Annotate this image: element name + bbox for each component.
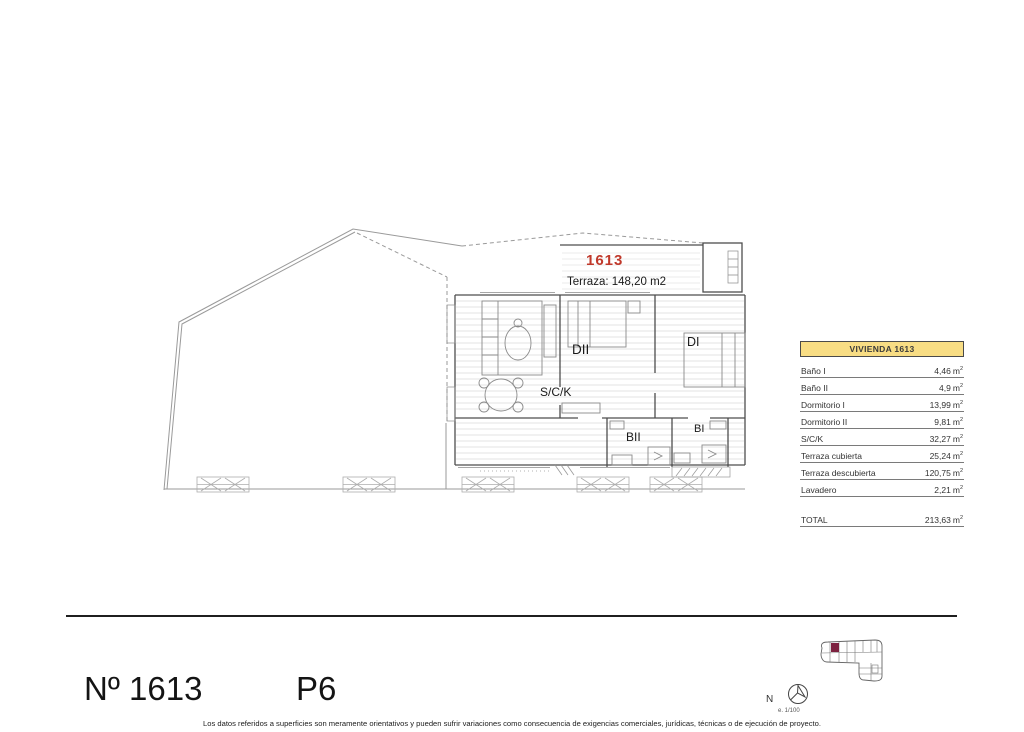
row-label: Baño I bbox=[801, 366, 826, 376]
planter-boxes bbox=[197, 477, 702, 492]
row-label: Terraza descubierta bbox=[801, 468, 876, 478]
floor-plan-drawing bbox=[150, 215, 750, 505]
floor-label: P6 bbox=[296, 670, 336, 708]
table-row: S/C/K 32,27m2 bbox=[800, 429, 964, 446]
table-row: Dormitorio I 13,99m2 bbox=[800, 395, 964, 412]
table-row: Terraza cubierta 25,24m2 bbox=[800, 446, 964, 463]
row-label: Baño II bbox=[801, 383, 828, 393]
room-label-bi: BI bbox=[694, 423, 704, 435]
room-label-bii: BII bbox=[626, 430, 641, 444]
room-label-sck: S/C/K bbox=[540, 385, 571, 399]
north-letter: N bbox=[766, 694, 773, 705]
table-row: Terraza descubierta 120,75m2 bbox=[800, 463, 964, 480]
table-row: Lavadero 2,21m2 bbox=[800, 480, 964, 497]
table-row: Baño II 4,9m2 bbox=[800, 378, 964, 395]
row-label: Lavadero bbox=[801, 485, 836, 495]
scale-note: e. 1/100 bbox=[778, 708, 800, 714]
row-label: S/C/K bbox=[801, 434, 823, 444]
row-value: 9,81m2 bbox=[934, 417, 963, 427]
surface-table-header: VIVIENDA 1613 bbox=[800, 341, 964, 357]
row-value: 13,99m2 bbox=[930, 400, 963, 410]
total-value: 213,63m2 bbox=[925, 515, 963, 525]
table-row: Dormitorio II 9,81m2 bbox=[800, 412, 964, 429]
row-value: 25,24m2 bbox=[930, 451, 963, 461]
locator-unit-highlight bbox=[831, 643, 839, 652]
row-label: Dormitorio I bbox=[801, 400, 845, 410]
terrace-area-label: Terraza: 148,20 m2 bbox=[567, 276, 666, 288]
row-value: 2,21m2 bbox=[934, 485, 963, 495]
room-label-di: DI bbox=[687, 335, 700, 349]
row-value: 120,75m2 bbox=[925, 468, 963, 478]
entrance-marks bbox=[480, 465, 574, 475]
unit-number-label: 1613 bbox=[586, 252, 623, 269]
table-row: Baño I 4,46m2 bbox=[800, 361, 964, 378]
row-value: 4,46m2 bbox=[934, 366, 963, 376]
room-label-dii: DII bbox=[572, 342, 589, 357]
total-label: TOTAL bbox=[801, 515, 828, 525]
row-label: Terraza cubierta bbox=[801, 451, 862, 461]
row-value: 4,9m2 bbox=[939, 383, 963, 393]
disclaimer-text: Los datos referidos a superficies son me… bbox=[132, 719, 892, 728]
footer-divider bbox=[66, 615, 957, 617]
table-total-row: TOTAL 213,63m2 bbox=[800, 510, 964, 527]
table-spacer bbox=[800, 497, 964, 510]
row-value: 32,27m2 bbox=[930, 434, 963, 444]
surface-table: VIVIENDA 1613 Baño I 4,46m2 Baño II 4,9m… bbox=[800, 341, 964, 527]
sheet-title: Nº 1613 bbox=[84, 670, 202, 708]
building-locator-icon bbox=[816, 634, 888, 686]
lavadero-hatch bbox=[672, 467, 730, 477]
furniture bbox=[479, 301, 745, 465]
row-label: Dormitorio II bbox=[801, 417, 847, 427]
